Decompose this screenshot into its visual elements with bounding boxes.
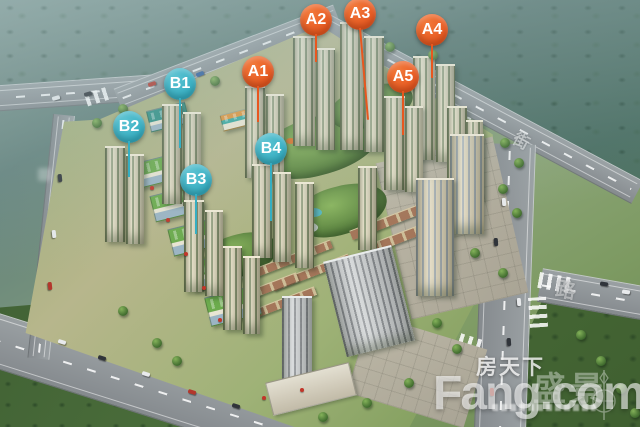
red-awning bbox=[202, 286, 206, 290]
car bbox=[52, 230, 57, 238]
car bbox=[48, 282, 53, 290]
car bbox=[507, 338, 512, 346]
marker-label: A3 bbox=[350, 5, 370, 23]
tree bbox=[428, 50, 438, 60]
marker-leader-line bbox=[195, 194, 197, 234]
aerial-masterplan-rendering: 街 路 bbox=[0, 0, 640, 427]
tower bbox=[243, 256, 260, 334]
office-tower bbox=[450, 134, 484, 234]
marker-label: B3 bbox=[186, 171, 206, 189]
marker-label: B2 bbox=[119, 118, 139, 136]
tower-a2 bbox=[293, 36, 315, 146]
office-tower bbox=[416, 178, 454, 296]
building-marker-a2: A2 bbox=[300, 4, 332, 36]
tree bbox=[210, 76, 220, 86]
building-marker-a1: A1 bbox=[242, 56, 274, 88]
marker-leader-line bbox=[402, 91, 404, 135]
marker-leader-line bbox=[179, 98, 181, 148]
tree bbox=[118, 306, 128, 316]
crosswalk bbox=[528, 297, 548, 328]
tree bbox=[498, 184, 508, 194]
tree bbox=[470, 248, 480, 258]
marker-leader-line bbox=[128, 141, 130, 177]
marker-leader-line bbox=[431, 44, 433, 78]
red-awning bbox=[150, 186, 154, 190]
marker-label: A2 bbox=[306, 11, 326, 29]
marker-label: B1 bbox=[170, 75, 190, 93]
marker-label: A5 bbox=[393, 68, 413, 86]
tree bbox=[500, 138, 510, 148]
project-tagline-blur bbox=[492, 404, 596, 411]
tree bbox=[576, 330, 586, 340]
tree bbox=[498, 268, 508, 278]
car bbox=[517, 298, 522, 306]
tower-b4 bbox=[252, 164, 272, 258]
red-awning bbox=[166, 218, 170, 222]
building-marker-b2: B2 bbox=[113, 111, 145, 143]
red-awning bbox=[262, 396, 266, 400]
building-marker-a5: A5 bbox=[387, 61, 419, 93]
tree bbox=[514, 158, 524, 168]
tree bbox=[432, 318, 442, 328]
building-marker-b3: B3 bbox=[180, 164, 212, 196]
building-marker-a4: A4 bbox=[416, 14, 448, 46]
building-marker-b4: B4 bbox=[255, 133, 287, 165]
red-awning bbox=[218, 318, 222, 322]
tower-b4 bbox=[273, 172, 291, 262]
tree bbox=[385, 42, 395, 52]
red-awning bbox=[184, 252, 188, 256]
car bbox=[58, 174, 63, 182]
marker-leader-line bbox=[257, 86, 259, 122]
tree bbox=[404, 378, 414, 388]
marker-leader-line bbox=[270, 163, 272, 221]
tree bbox=[92, 118, 102, 128]
marker-leader-line bbox=[315, 34, 317, 62]
tower-b3 bbox=[184, 200, 204, 292]
tower-a3 bbox=[364, 36, 384, 152]
marker-label: B4 bbox=[261, 140, 281, 158]
car bbox=[502, 198, 507, 206]
car bbox=[494, 238, 499, 246]
tower bbox=[295, 182, 314, 268]
tree bbox=[318, 412, 328, 422]
marker-label: A4 bbox=[422, 21, 442, 39]
tower bbox=[223, 246, 242, 330]
illegible-road-text bbox=[38, 168, 51, 181]
tree bbox=[152, 338, 162, 348]
marker-label: A1 bbox=[248, 63, 268, 81]
tower-a2 bbox=[316, 48, 335, 150]
tree bbox=[172, 356, 182, 366]
building-marker-b1: B1 bbox=[164, 68, 196, 100]
tree bbox=[362, 398, 372, 408]
tower-b2 bbox=[105, 146, 125, 242]
tree bbox=[512, 208, 522, 218]
tower bbox=[358, 166, 377, 250]
tower-b3 bbox=[205, 210, 223, 296]
red-awning bbox=[300, 388, 304, 392]
fang-logo-watermark: Fang.com bbox=[433, 366, 640, 421]
tree bbox=[452, 344, 462, 354]
